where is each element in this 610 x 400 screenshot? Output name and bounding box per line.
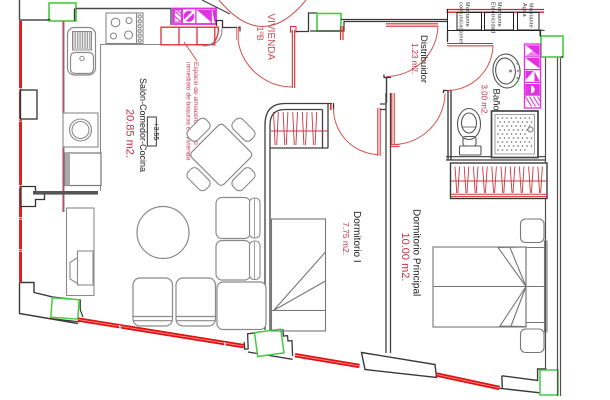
svg-text:3.00 m2.: 3.00 m2.	[480, 85, 489, 116]
svg-text:Dormitorio Principal: Dormitorio Principal	[411, 209, 422, 296]
svg-text:7.75 m2.: 7.75 m2.	[341, 222, 351, 255]
svg-text:Montante: Montante	[464, 2, 470, 27]
svg-text:inmediato de basuras en vivien: inmediato de basuras en vivienda	[185, 62, 192, 161]
svg-text:Montante: Montante	[496, 2, 502, 27]
svg-text:+3.55: +3.55	[152, 123, 159, 141]
svg-text:1ºB: 1ºB	[255, 27, 265, 41]
svg-text:Salón-Comedor-Cocina: Salón-Comedor-Cocina	[138, 78, 148, 172]
svg-text:Agua: Agua	[521, 3, 527, 18]
svg-text:20.85 m2.: 20.85 m2.	[124, 109, 136, 158]
svg-text:Electricidad: Electricidad	[490, 2, 496, 33]
svg-text:comunicaciones: comunicaciones	[458, 2, 464, 45]
svg-text:Dormitorio I: Dormitorio I	[351, 211, 362, 263]
svg-text:Baño: Baño	[491, 89, 502, 111]
svg-text:1.23 m2.: 1.23 m2.	[410, 43, 419, 74]
svg-text:VIVIENDA: VIVIENDA	[265, 14, 276, 61]
svg-text:10.00 m2.: 10.00 m2.	[399, 233, 411, 282]
svg-text:Montante: Montante	[528, 3, 534, 28]
